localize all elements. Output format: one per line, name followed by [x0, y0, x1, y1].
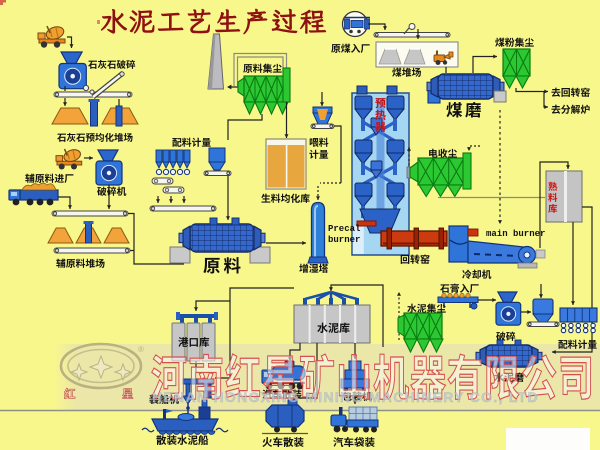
svg-text:HENAN HONGXING MINING MACHINER: HENAN HONGXING MINING MACHINERY CO., LTD — [152, 389, 539, 405]
svg-text:main burner: main burner — [486, 229, 545, 239]
svg-text:burner: burner — [328, 235, 360, 245]
svg-text:®: ® — [138, 345, 144, 354]
svg-text:Precal: Precal — [328, 224, 361, 234]
